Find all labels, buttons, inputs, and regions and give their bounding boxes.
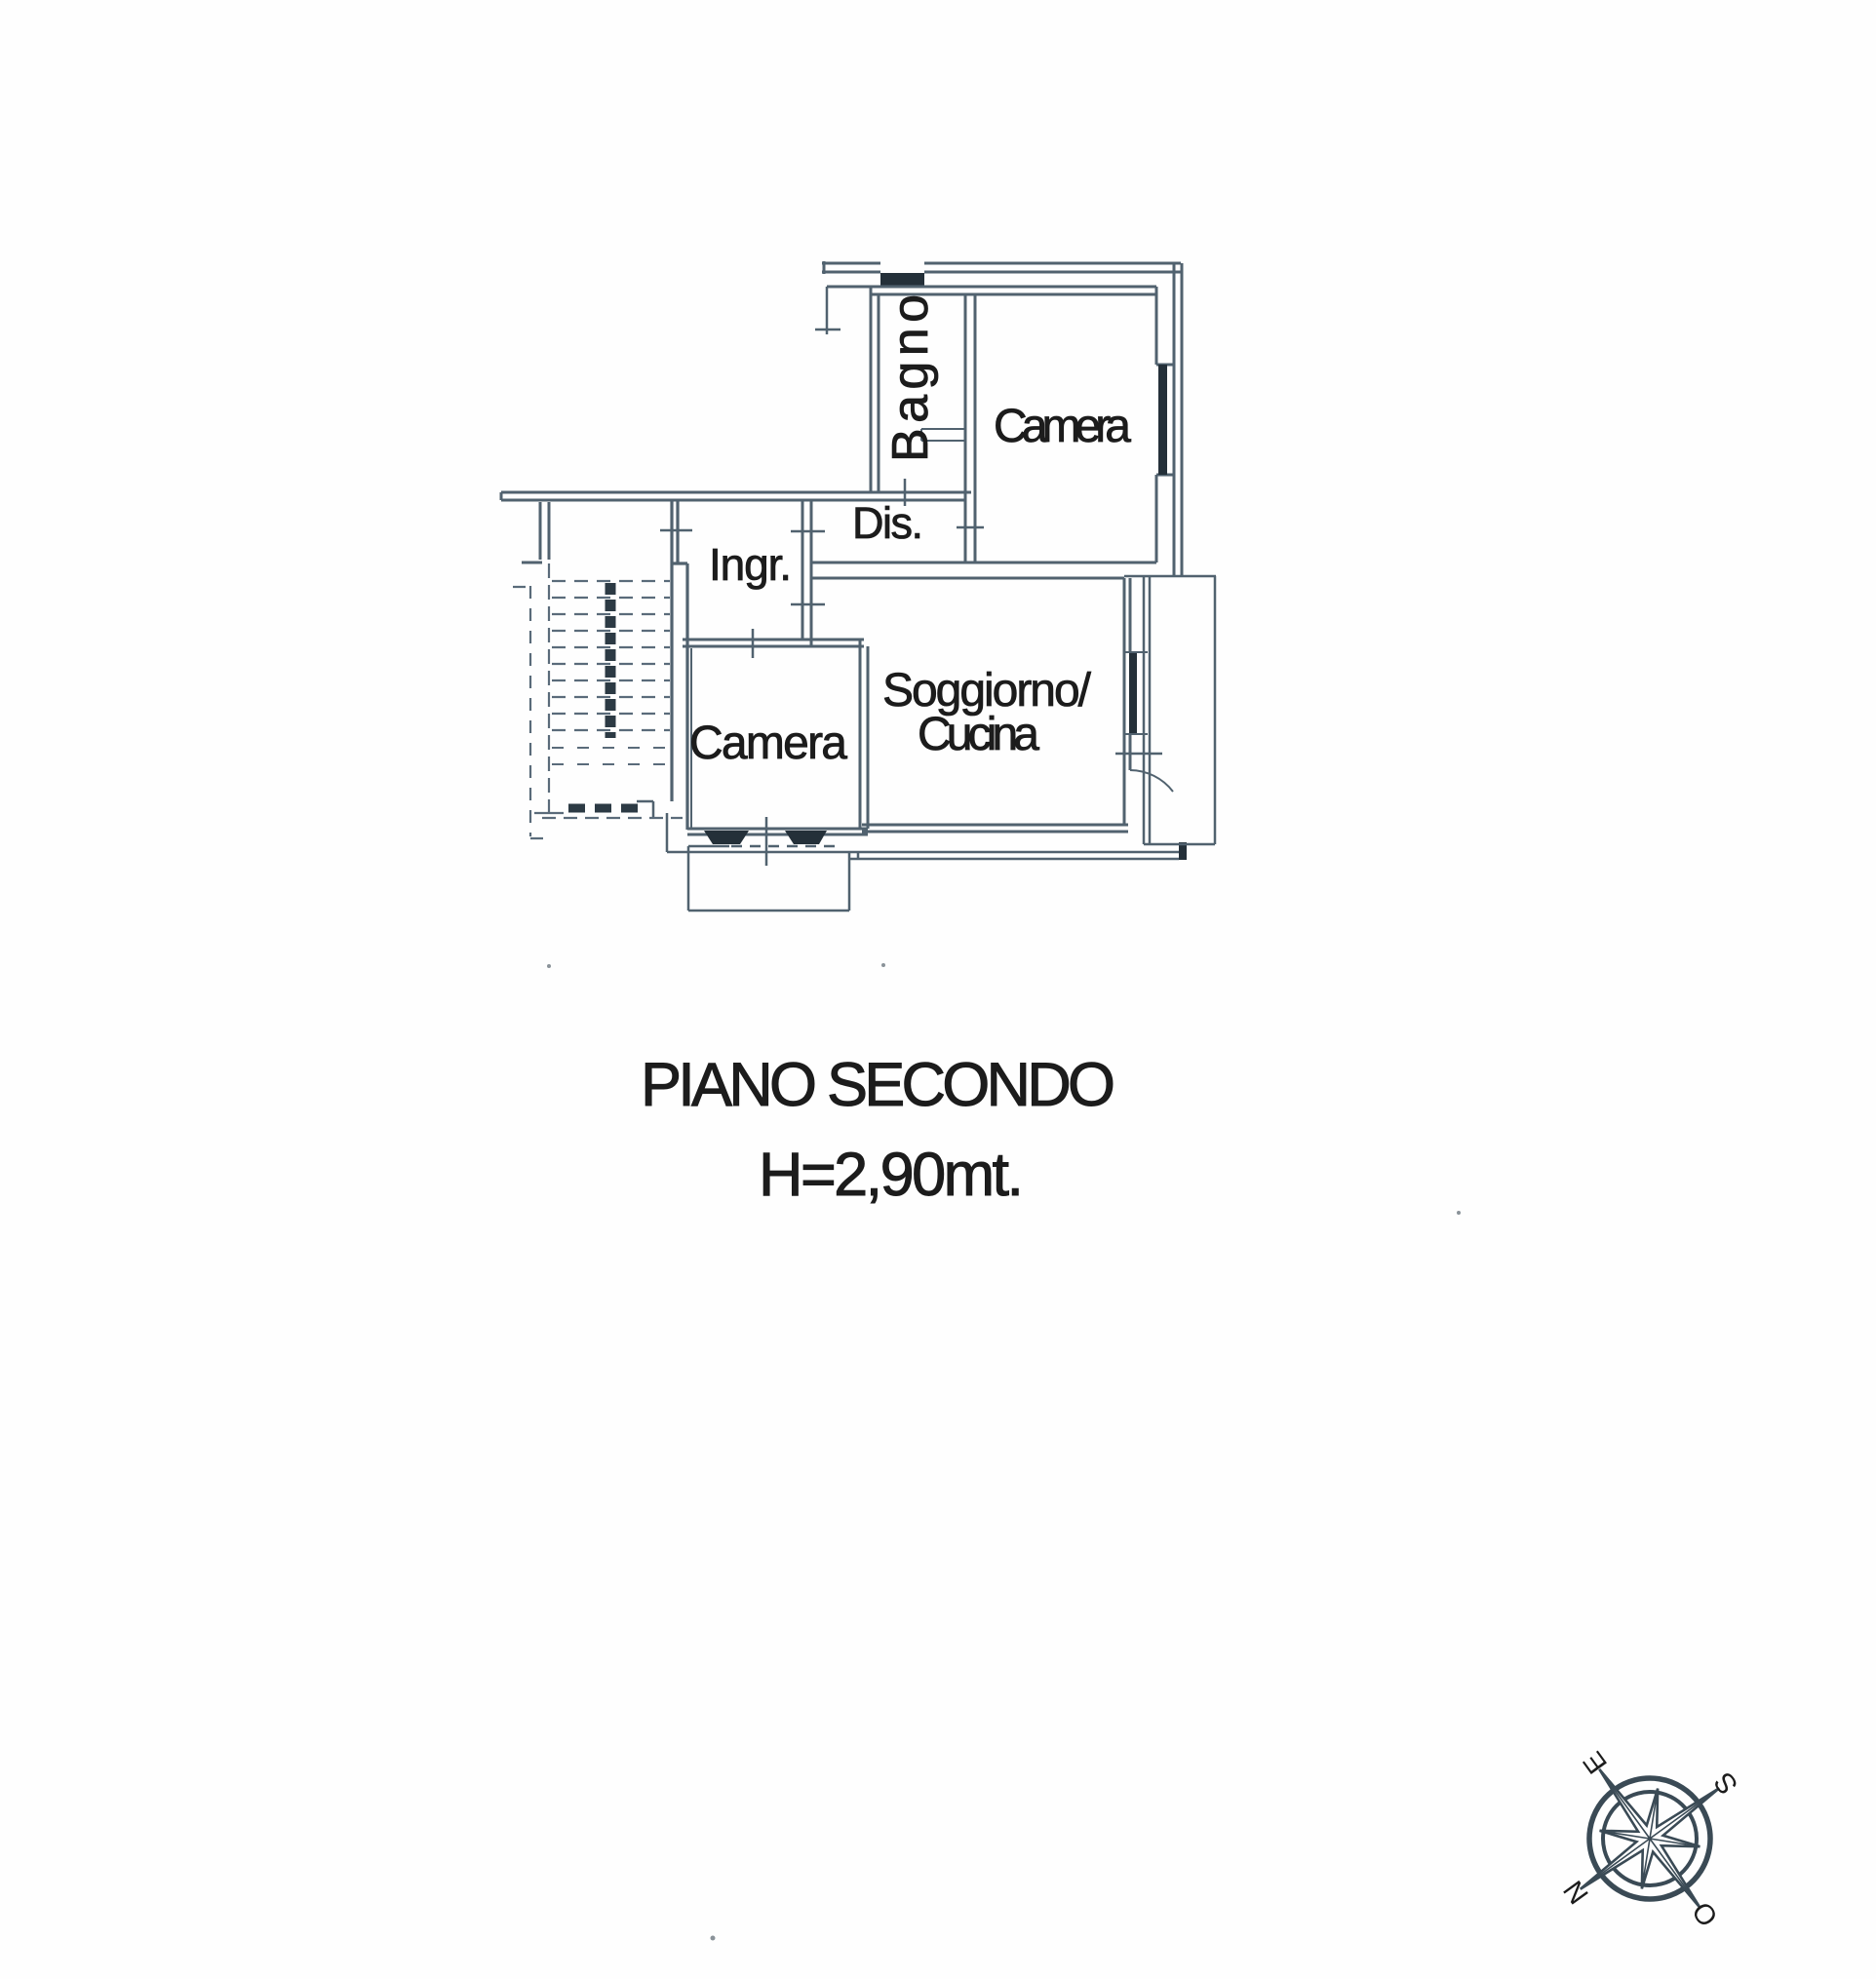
svg-text:PIANO SECONDO: PIANO SECONDO — [641, 1051, 1115, 1119]
svg-text:N: N — [1558, 1875, 1595, 1910]
svg-text:S: S — [1708, 1766, 1744, 1800]
svg-text:Ingr.: Ingr. — [709, 539, 792, 590]
svg-text:H=2,90mt.: H=2,90mt. — [759, 1141, 1024, 1209]
svg-text:Dis.: Dis. — [852, 498, 923, 548]
svg-text:Cucina: Cucina — [918, 709, 1039, 760]
svg-text:Bagno: Bagno — [882, 294, 939, 462]
svg-text:Camera: Camera — [994, 401, 1131, 452]
svg-text:O: O — [1687, 1896, 1725, 1932]
svg-text:Camera: Camera — [689, 718, 847, 769]
svg-text:E: E — [1578, 1746, 1614, 1779]
